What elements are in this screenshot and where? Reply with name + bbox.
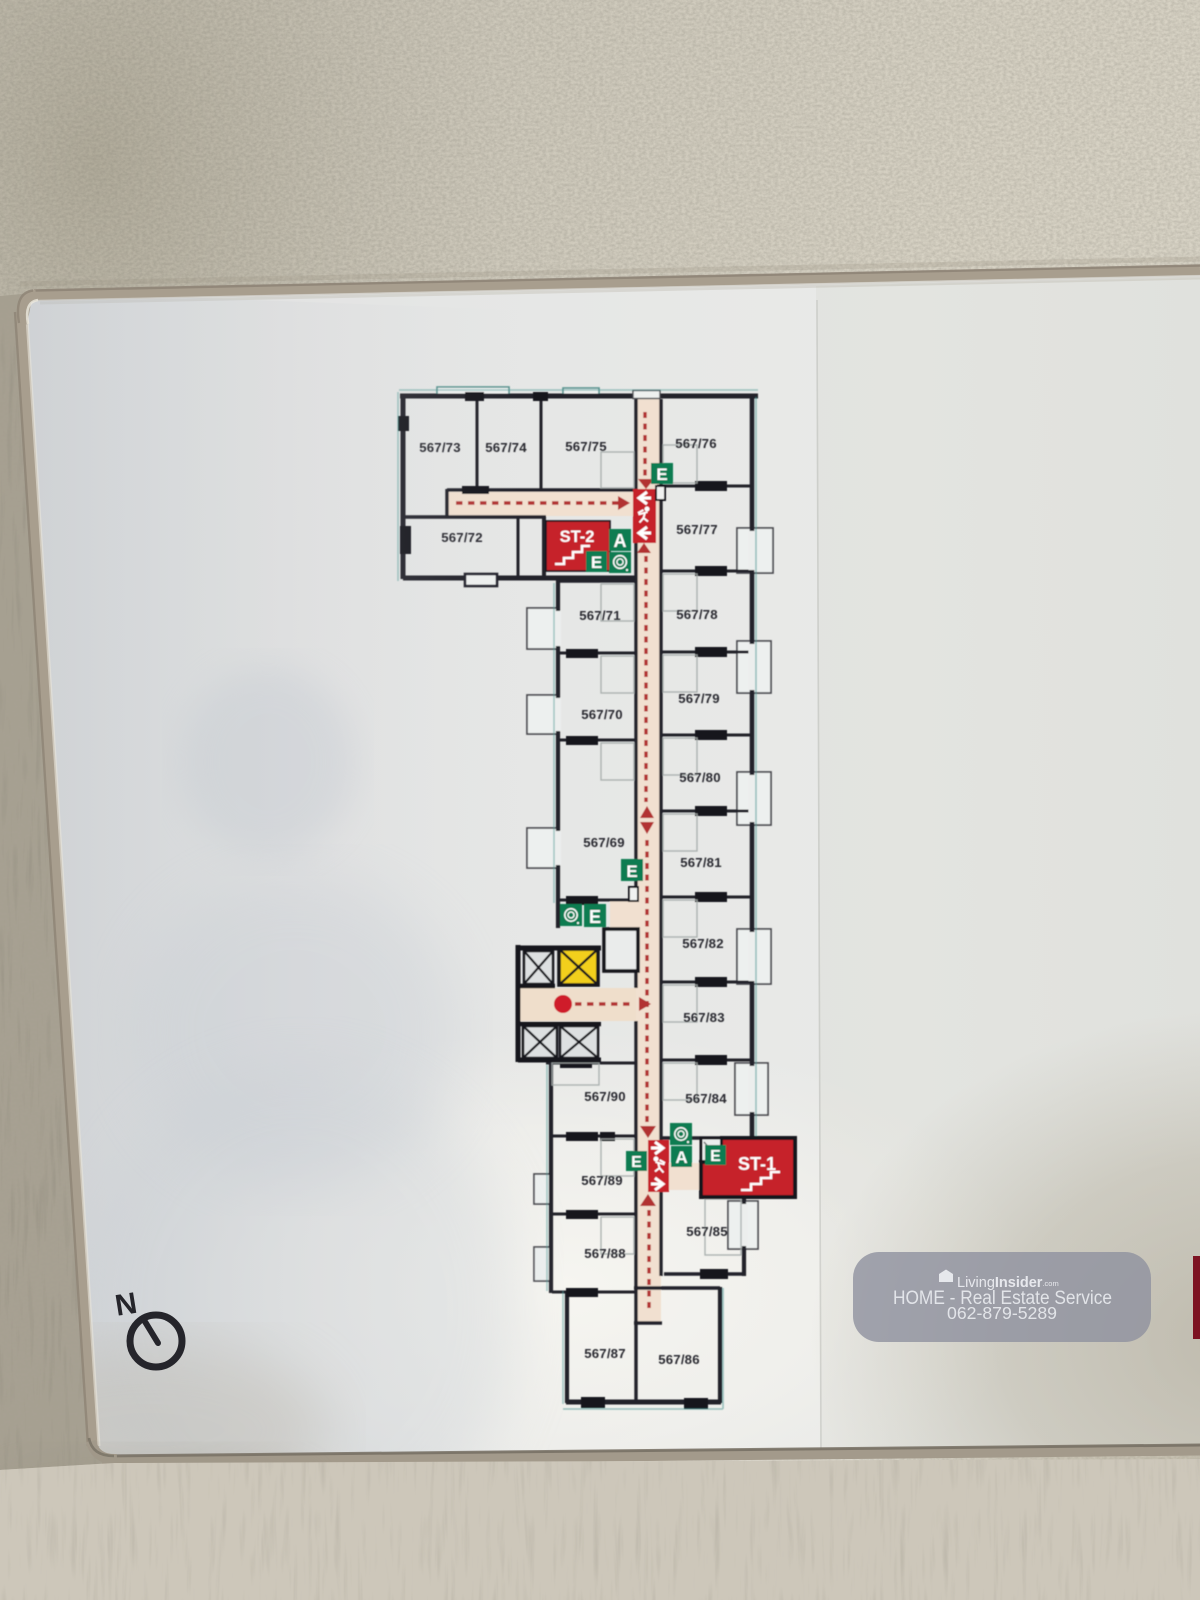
svg-text:E: E [626, 862, 637, 881]
svg-text:A: A [675, 1148, 687, 1167]
svg-text:567/85: 567/85 [686, 1224, 728, 1239]
svg-text:567/69: 567/69 [583, 835, 625, 850]
svg-text:567/81: 567/81 [680, 855, 722, 870]
svg-text:E: E [589, 907, 601, 927]
svg-text:567/79: 567/79 [678, 691, 720, 706]
svg-text:567/77: 567/77 [676, 522, 718, 537]
svg-text:062-879-5289: 062-879-5289 [947, 1303, 1057, 1323]
svg-text:567/80: 567/80 [679, 770, 721, 785]
svg-text:ST-2: ST-2 [560, 528, 595, 546]
svg-text:567/70: 567/70 [581, 707, 623, 722]
svg-text:567/83: 567/83 [683, 1010, 725, 1025]
svg-text:567/78: 567/78 [676, 607, 718, 622]
svg-text:567/87: 567/87 [584, 1346, 626, 1361]
svg-text:E: E [631, 1154, 642, 1171]
svg-text:A: A [614, 531, 627, 551]
svg-text:E: E [710, 1148, 721, 1165]
svg-text:567/88: 567/88 [584, 1246, 626, 1261]
svg-text:567/75: 567/75 [565, 439, 607, 454]
svg-text:567/76: 567/76 [675, 436, 717, 451]
svg-text:567/90: 567/90 [584, 1089, 626, 1104]
svg-text:567/71: 567/71 [579, 608, 621, 623]
svg-text:567/84: 567/84 [685, 1091, 727, 1106]
svg-text:E: E [591, 553, 602, 572]
svg-text:567/86: 567/86 [658, 1352, 700, 1367]
svg-text:567/89: 567/89 [581, 1173, 623, 1188]
svg-text:E: E [656, 465, 667, 484]
svg-text:567/82: 567/82 [682, 936, 724, 951]
